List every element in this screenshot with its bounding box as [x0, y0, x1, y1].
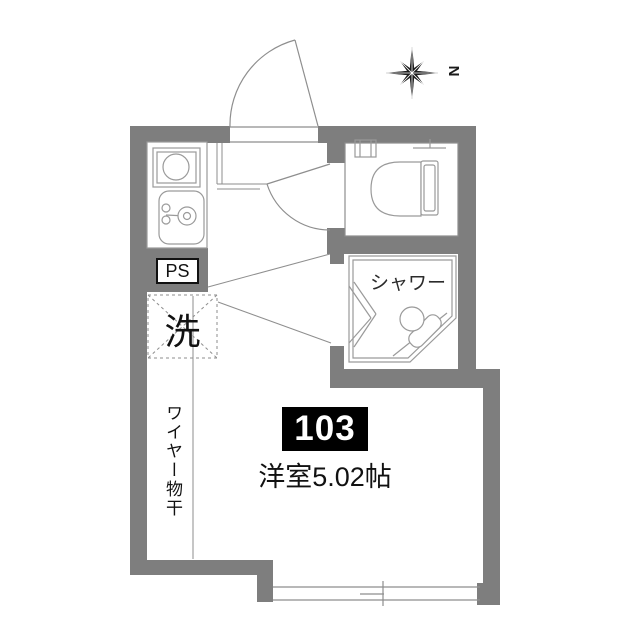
washer-label: 洗 — [148, 303, 217, 355]
wall-shower-left-stub — [330, 254, 344, 264]
shower-bifold-door-panel2b — [349, 318, 371, 343]
shower-label: シャワー — [362, 268, 454, 295]
kitchen-unit — [147, 142, 207, 248]
wall-right-lower — [483, 369, 500, 605]
faucet-handle-bottom — [162, 216, 170, 224]
stove-burner — [163, 154, 189, 180]
toilet-door-swing-arc — [267, 184, 330, 230]
wall-bottom-left — [130, 560, 273, 575]
compass: N — [386, 47, 462, 99]
unit-number-badge: 103 — [282, 407, 368, 451]
wall-partition-bottom — [327, 228, 345, 254]
entrance-door-swing-arc — [230, 40, 295, 127]
bottom-window — [273, 581, 480, 606]
wall-toilet-shower-divider — [327, 236, 476, 254]
shower-fixture-head — [400, 307, 424, 331]
toilet-room — [267, 139, 458, 236]
shower-bifold-door-panel2a — [354, 314, 376, 347]
compass-star-facets — [386, 47, 438, 99]
faucet-handle-top — [162, 204, 170, 212]
wall-shower-bottom — [330, 369, 500, 388]
wall-partition-top — [327, 126, 345, 163]
wall-left — [130, 126, 147, 575]
wall-step — [257, 560, 273, 602]
ps-label: PS — [157, 259, 198, 283]
entry-hall-lines — [208, 143, 331, 343]
wall-bottom-right-block — [477, 583, 500, 605]
hall-floor-line-lower — [218, 302, 331, 343]
entrance-door — [230, 40, 318, 142]
drain-inner — [184, 213, 191, 220]
floorplan-image: N PS 洗 シャワー 103 洋室5.02帖 ワイヤー物干 — [0, 0, 640, 639]
wire-drying-label: ワイヤー物干 — [160, 404, 185, 564]
toilet-bowl — [371, 162, 421, 216]
entrance-door-leaf — [295, 40, 318, 126]
compass-north-label: N — [445, 66, 462, 77]
floorplan-canvas: N — [0, 0, 640, 639]
toilet-door-leaf — [267, 164, 330, 184]
wall-right-upper — [458, 126, 476, 388]
room-size-label: 洋室5.02帖 — [230, 455, 420, 494]
hall-floor-line-upper — [208, 254, 330, 287]
